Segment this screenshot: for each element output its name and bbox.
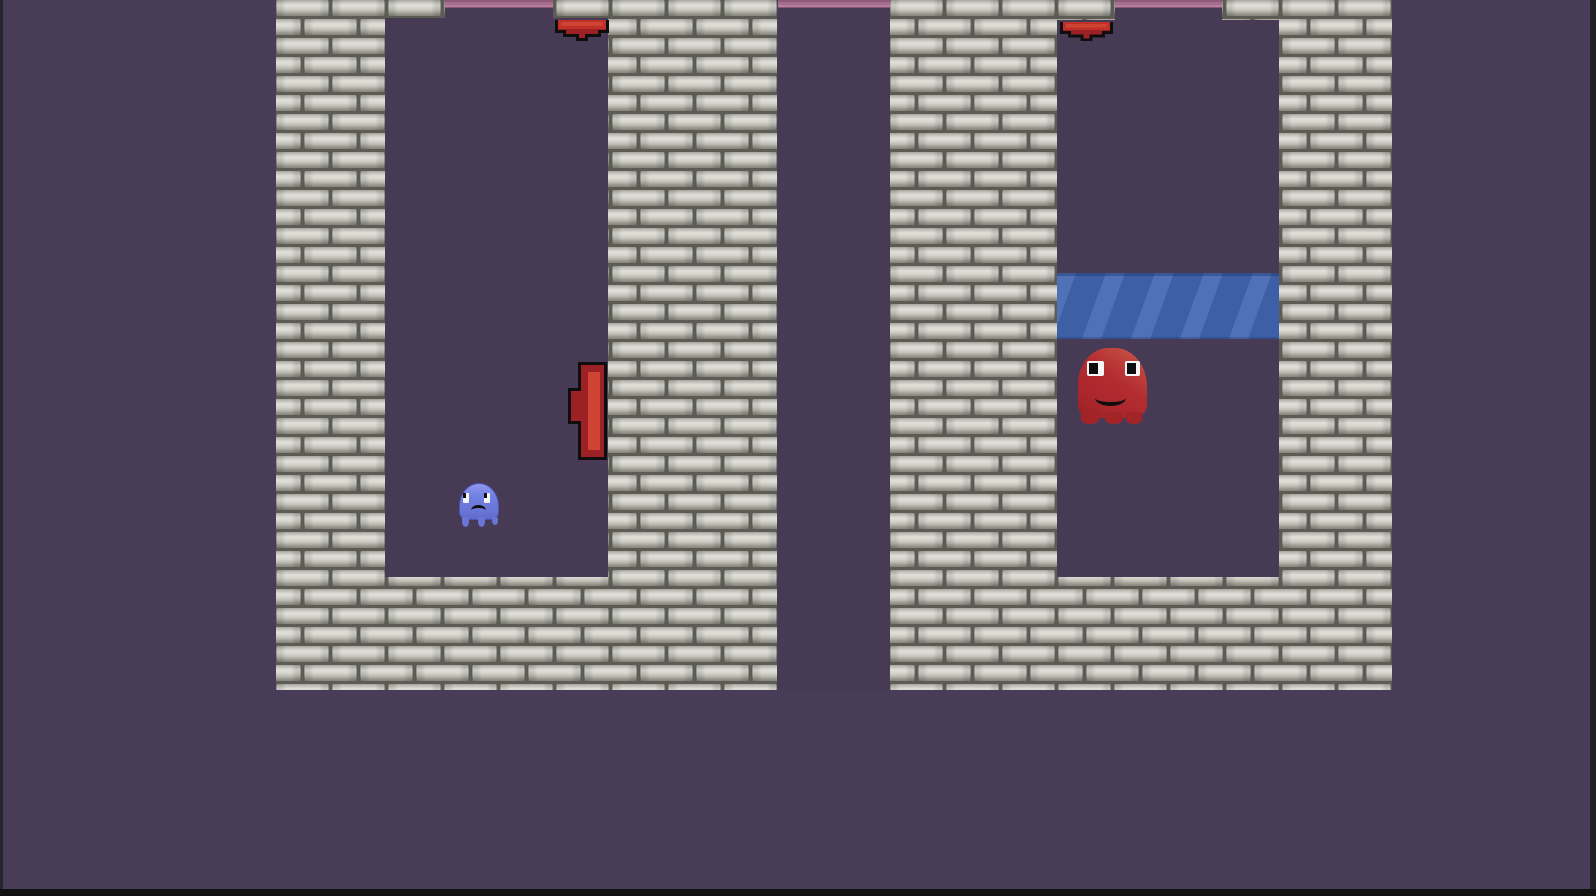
brick <box>752 475 777 491</box>
red-bumper-icon <box>1060 22 1113 41</box>
brick <box>724 228 777 244</box>
brick <box>1338 266 1391 282</box>
brick <box>1058 646 1111 662</box>
brick <box>1170 608 1223 624</box>
brick <box>276 114 329 130</box>
brick <box>640 209 693 225</box>
screen-edge-left <box>0 0 3 896</box>
brick <box>724 190 777 206</box>
brick <box>1282 646 1335 662</box>
brick <box>276 627 301 643</box>
brick <box>556 646 609 662</box>
screen-edge-right <box>1590 0 1596 896</box>
brick <box>974 133 1027 149</box>
brick <box>890 494 943 510</box>
brick <box>528 665 581 681</box>
brick <box>1310 627 1363 643</box>
brick <box>890 76 943 92</box>
brick <box>1198 665 1251 681</box>
brick <box>946 684 999 690</box>
brick <box>1058 0 1111 16</box>
ghost-eye <box>463 493 469 503</box>
brick <box>640 171 693 187</box>
brick <box>304 551 357 567</box>
brick <box>974 437 1027 453</box>
brick <box>918 19 971 35</box>
brick <box>890 551 915 567</box>
brick <box>1338 684 1391 690</box>
brick <box>1226 0 1279 16</box>
brick <box>556 0 609 16</box>
brick <box>974 399 1027 415</box>
brick <box>304 399 357 415</box>
brick <box>668 114 721 130</box>
brick <box>1002 532 1055 548</box>
brick <box>696 399 749 415</box>
brick <box>890 228 943 244</box>
brick <box>444 646 497 662</box>
brick <box>974 551 1027 567</box>
brick <box>752 589 777 605</box>
brick <box>1282 532 1335 548</box>
brick <box>1366 19 1392 35</box>
brick <box>332 152 385 168</box>
brick <box>584 665 637 681</box>
brick <box>1282 570 1335 586</box>
brick <box>752 323 777 339</box>
blue-sad-ghost[interactable] <box>458 483 499 527</box>
brick <box>640 513 693 529</box>
brick <box>1310 665 1363 681</box>
brick <box>612 494 665 510</box>
brick <box>1030 589 1083 605</box>
brick <box>612 190 665 206</box>
brick <box>1310 285 1363 301</box>
brick <box>1282 304 1335 320</box>
brick <box>276 456 329 472</box>
brick <box>890 190 943 206</box>
brick <box>1002 608 1055 624</box>
brick <box>332 570 385 586</box>
brick <box>946 532 999 548</box>
brick <box>918 399 971 415</box>
brick <box>696 19 749 35</box>
brick <box>332 532 385 548</box>
brick <box>612 266 665 282</box>
ghost-frown-mouth <box>471 505 486 516</box>
brick <box>612 608 665 624</box>
brick <box>724 380 777 396</box>
brick <box>974 95 1027 111</box>
brick <box>1002 646 1055 662</box>
brick <box>304 589 357 605</box>
brick <box>724 38 777 54</box>
brick <box>724 304 777 320</box>
brick <box>918 323 971 339</box>
brick <box>612 570 665 586</box>
brick <box>724 418 777 434</box>
brick <box>918 133 971 149</box>
brick <box>304 95 357 111</box>
brick <box>724 342 777 358</box>
brick <box>332 114 385 130</box>
brick <box>528 589 581 605</box>
brick <box>1282 266 1335 282</box>
red-ceiling-bumper-left <box>555 20 609 41</box>
ghost-pupil <box>1127 363 1136 374</box>
brick <box>640 361 693 377</box>
brick <box>890 589 915 605</box>
brick <box>388 0 441 16</box>
brick <box>696 437 749 453</box>
brick <box>696 171 749 187</box>
brick <box>724 646 777 662</box>
brick <box>1254 589 1307 605</box>
brick <box>276 266 329 282</box>
brick <box>696 95 749 111</box>
brick <box>890 323 915 339</box>
red-happy-ghost[interactable] <box>1078 348 1147 424</box>
brick <box>696 247 749 263</box>
brick <box>332 266 385 282</box>
brick <box>360 627 413 643</box>
brick <box>1366 589 1392 605</box>
brick <box>1366 95 1392 111</box>
brick <box>276 171 301 187</box>
brick <box>276 684 329 690</box>
brick <box>974 171 1027 187</box>
brick <box>946 494 999 510</box>
brick <box>696 209 749 225</box>
brick <box>640 475 693 491</box>
brick <box>890 95 915 111</box>
brick <box>332 646 385 662</box>
brick <box>276 418 329 434</box>
brick <box>696 323 749 339</box>
brick <box>1366 475 1392 491</box>
ghost-foot <box>492 517 498 525</box>
brick <box>946 456 999 472</box>
brick <box>1310 475 1363 491</box>
screen-edge-bottom <box>0 889 1596 896</box>
brick <box>946 304 999 320</box>
brick <box>946 266 999 282</box>
ghost-body <box>1078 348 1147 418</box>
brick <box>918 589 971 605</box>
brick <box>1058 608 1111 624</box>
brick <box>946 114 999 130</box>
brick <box>724 456 777 472</box>
brick <box>304 437 357 453</box>
brick <box>1310 95 1363 111</box>
brick <box>612 0 665 16</box>
brick <box>612 532 665 548</box>
brick <box>304 361 357 377</box>
brick <box>1338 608 1391 624</box>
brick <box>1114 646 1167 662</box>
brick <box>890 627 915 643</box>
brick <box>612 684 665 690</box>
brick <box>276 285 301 301</box>
brick <box>612 646 665 662</box>
red-ceiling-bumper-right <box>1060 22 1113 41</box>
brick <box>918 209 971 225</box>
brick <box>752 627 777 643</box>
brick <box>1366 209 1392 225</box>
pink-ceiling-right-room <box>1115 0 1222 8</box>
brick <box>276 304 329 320</box>
brick <box>1058 684 1111 690</box>
brick <box>890 304 943 320</box>
pink-ceiling-left-room <box>445 0 553 8</box>
brick <box>472 589 525 605</box>
brick <box>276 399 301 415</box>
brick <box>1282 608 1335 624</box>
brick <box>668 266 721 282</box>
brick <box>1282 0 1335 16</box>
brick <box>1338 114 1391 130</box>
brick <box>974 209 1027 225</box>
brick <box>918 437 971 453</box>
brick <box>1282 38 1335 54</box>
brick <box>612 152 665 168</box>
brick <box>276 532 329 548</box>
brick <box>304 133 357 149</box>
brick <box>276 361 301 377</box>
brick <box>890 437 915 453</box>
brick <box>752 171 777 187</box>
brick <box>1338 76 1391 92</box>
brick <box>1226 608 1279 624</box>
brick <box>974 57 1027 73</box>
brick <box>752 57 777 73</box>
brick <box>1338 570 1391 586</box>
brick <box>1366 437 1392 453</box>
brick <box>890 570 943 586</box>
brick <box>752 665 777 681</box>
brick <box>696 57 749 73</box>
brick <box>1338 304 1391 320</box>
brick <box>1254 627 1307 643</box>
brick <box>946 608 999 624</box>
red-wall-bumper <box>568 362 607 460</box>
brick <box>1198 589 1251 605</box>
brick <box>1086 627 1139 643</box>
brick <box>890 513 915 529</box>
brick <box>472 627 525 643</box>
brick <box>304 285 357 301</box>
brick <box>276 57 301 73</box>
brick <box>890 684 943 690</box>
brick <box>1310 513 1363 529</box>
brick <box>974 285 1027 301</box>
brick <box>612 304 665 320</box>
brick <box>890 532 943 548</box>
brick <box>1282 456 1335 472</box>
brick <box>640 323 693 339</box>
brick <box>668 418 721 434</box>
brick <box>946 380 999 396</box>
brick <box>1366 513 1392 529</box>
brick <box>890 475 915 491</box>
brick <box>1366 171 1392 187</box>
brick <box>946 38 999 54</box>
brick <box>918 171 971 187</box>
brick <box>1282 494 1335 510</box>
brick <box>946 570 999 586</box>
brick <box>724 266 777 282</box>
brick <box>1366 665 1392 681</box>
brick <box>1030 665 1083 681</box>
brick <box>1310 171 1363 187</box>
brick <box>668 304 721 320</box>
brick <box>640 627 693 643</box>
brick <box>1086 589 1139 605</box>
brick <box>1366 627 1392 643</box>
brick <box>500 646 553 662</box>
brick <box>1310 247 1363 263</box>
brick <box>416 627 469 643</box>
pink-ceiling-gap-channel <box>778 0 890 8</box>
brick <box>276 665 301 681</box>
brick <box>1310 361 1363 377</box>
brick <box>696 665 749 681</box>
ghost-pupil <box>463 493 466 498</box>
brick <box>388 684 441 690</box>
brick <box>332 228 385 244</box>
brick <box>724 608 777 624</box>
brick <box>612 380 665 396</box>
brick <box>276 95 301 111</box>
brick <box>332 418 385 434</box>
brick <box>304 323 357 339</box>
brick <box>696 589 749 605</box>
brick <box>752 399 777 415</box>
brick <box>276 646 329 662</box>
brick <box>724 684 777 690</box>
brick <box>360 589 413 605</box>
brick <box>332 494 385 510</box>
brick <box>668 38 721 54</box>
brick <box>640 665 693 681</box>
brick <box>640 19 693 35</box>
brick <box>890 114 943 130</box>
brick <box>1002 684 1055 690</box>
brick <box>1310 19 1363 35</box>
brick <box>276 228 329 244</box>
brick <box>668 494 721 510</box>
brick <box>668 456 721 472</box>
brick <box>752 247 777 263</box>
brick <box>1198 627 1251 643</box>
game-viewport[interactable] <box>0 0 1596 896</box>
brick <box>1170 646 1223 662</box>
brick <box>1002 190 1055 206</box>
brick <box>974 19 1027 35</box>
brick <box>1366 133 1392 149</box>
brick <box>1366 399 1392 415</box>
brick <box>584 589 637 605</box>
brick <box>752 19 777 35</box>
brick <box>1002 114 1055 130</box>
brick <box>276 76 329 92</box>
brick <box>332 76 385 92</box>
ghost-smile-mouth <box>1095 390 1126 406</box>
brick <box>668 190 721 206</box>
ghost-eye <box>1125 361 1140 376</box>
brick <box>1310 209 1363 225</box>
brick <box>890 456 943 472</box>
brick <box>612 418 665 434</box>
brick <box>1114 684 1167 690</box>
brick <box>724 152 777 168</box>
brick <box>1086 665 1139 681</box>
brick <box>276 589 301 605</box>
brick <box>918 665 971 681</box>
brick <box>946 76 999 92</box>
brick <box>1142 665 1195 681</box>
brick <box>304 57 357 73</box>
brick <box>276 342 329 358</box>
brick <box>528 627 581 643</box>
brick <box>640 247 693 263</box>
brick <box>696 627 749 643</box>
brick <box>946 342 999 358</box>
brick <box>1338 646 1391 662</box>
brick <box>1366 247 1392 263</box>
brick <box>668 342 721 358</box>
brick <box>612 114 665 130</box>
brick <box>1366 285 1392 301</box>
brick <box>668 0 721 16</box>
brick <box>444 608 497 624</box>
brick <box>668 532 721 548</box>
brick <box>724 0 777 16</box>
brick <box>752 133 777 149</box>
brick <box>640 437 693 453</box>
ghost-foot <box>1105 412 1123 424</box>
brick <box>724 494 777 510</box>
brick <box>276 475 301 491</box>
brick <box>1002 76 1055 92</box>
brick <box>724 76 777 92</box>
brick <box>640 399 693 415</box>
brick <box>696 551 749 567</box>
brick <box>612 76 665 92</box>
brick <box>1338 456 1391 472</box>
brick <box>696 133 749 149</box>
red-bumper-icon <box>555 20 609 41</box>
brick <box>276 570 329 586</box>
brick <box>890 38 943 54</box>
brick <box>1366 323 1392 339</box>
brick <box>974 665 1027 681</box>
brick <box>416 589 469 605</box>
brick <box>1282 152 1335 168</box>
ghost-pupil <box>1089 363 1098 374</box>
brick <box>304 19 357 35</box>
brick <box>668 646 721 662</box>
brick <box>1002 266 1055 282</box>
brick <box>360 665 413 681</box>
brick <box>890 247 915 263</box>
brick <box>276 190 329 206</box>
brick <box>1030 627 1083 643</box>
brick <box>332 456 385 472</box>
brick <box>332 342 385 358</box>
brick <box>276 551 301 567</box>
brick <box>276 608 329 624</box>
